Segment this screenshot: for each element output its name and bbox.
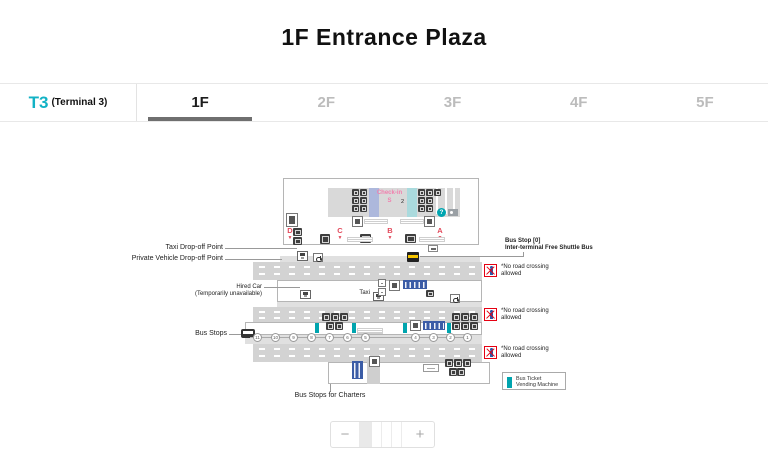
leader-line	[225, 259, 282, 260]
taxi-label: Taxi	[352, 290, 370, 297]
moving-walkway-icon	[347, 237, 373, 242]
page: { "title": "1F Entrance Plaza", "termina…	[0, 0, 768, 463]
no-crossing-label: *No road crossing allowed	[501, 346, 553, 360]
legend-box: Bus Ticket Vending Machine	[502, 372, 566, 390]
elevator-icon	[286, 213, 298, 227]
facility-icon	[360, 197, 367, 204]
lane-marking	[259, 355, 476, 357]
photo-spot-icon	[448, 209, 458, 216]
stairs-teal-zone	[407, 188, 417, 217]
bus-stop-number: 3	[429, 333, 438, 342]
tab-1f-label: 1F	[191, 94, 209, 111]
toilet-icon	[423, 321, 445, 330]
no-crossing-icon	[484, 264, 497, 277]
bus-stop-number: 6	[343, 333, 352, 342]
page-title: 1F Entrance Plaza	[0, 24, 768, 51]
escalator-icon	[378, 279, 386, 287]
facility-icon	[426, 205, 433, 212]
stop-sign-icon	[423, 364, 439, 372]
baggage-icon	[320, 234, 330, 244]
moving-walkway-icon	[364, 219, 388, 224]
no-crossing-icon	[484, 308, 497, 321]
zoom-in-button[interactable]: +	[406, 422, 434, 447]
leader-line	[420, 256, 524, 257]
tab-4f-label: 4F	[570, 94, 588, 111]
zoom-level-indicator[interactable]	[359, 422, 372, 447]
facility-icon	[418, 197, 425, 204]
road	[253, 307, 482, 323]
tab-2f[interactable]: 2F	[263, 84, 389, 121]
elevator-icon	[410, 320, 421, 331]
vending-machine-legend-icon	[507, 377, 512, 388]
tab-3f-label: 3F	[444, 94, 462, 111]
facility-icon	[322, 313, 330, 321]
moving-walkway-icon	[357, 328, 383, 334]
facility-icon	[426, 189, 433, 196]
elevator-icon	[389, 280, 400, 291]
bus-stop-number: 4	[411, 333, 420, 342]
door-c: C ▼	[334, 227, 346, 241]
bus-stop-number: 2	[446, 333, 455, 342]
tab-4f[interactable]: 4F	[516, 84, 642, 121]
facility-icon	[452, 322, 460, 330]
facility-icon	[454, 359, 462, 367]
taxi-stand-icon	[297, 251, 308, 261]
facility-icon	[335, 322, 343, 330]
active-tab-underline	[148, 117, 252, 121]
lane-marking	[259, 311, 476, 313]
wheelchair-access-icon	[450, 294, 460, 303]
facility-icon	[470, 313, 478, 321]
bus-stop-0-label: Bus Stop [0] Inter-terminal Free Shuttle…	[505, 238, 655, 252]
facility-icon	[457, 368, 465, 376]
facility-icon	[418, 189, 425, 196]
facility-icon	[331, 313, 339, 321]
legend-text: Bus Ticket Vending Machine	[516, 376, 558, 390]
facility-icon	[452, 313, 460, 321]
facility-icon	[352, 197, 359, 204]
hired-car-label: Hired Car (Temporarily unavailable)	[102, 284, 262, 298]
facility-icon	[434, 189, 441, 196]
facility-icon	[461, 322, 469, 330]
road	[253, 262, 482, 280]
terminal-code: T3	[29, 93, 49, 113]
zoom-out-button[interactable]: −	[331, 422, 359, 447]
camera-icon	[428, 245, 438, 252]
tab-3f[interactable]: 3F	[389, 84, 515, 121]
lane-marking	[259, 348, 476, 350]
toilet-icon	[403, 280, 427, 289]
floor-tab-bar: T3 (Terminal 3) 1F 2F 3F 4F 5F	[0, 83, 768, 122]
ticket-vending-machine-icon	[447, 323, 451, 333]
facility-icon	[426, 197, 433, 204]
bus-stop-number: 7	[325, 333, 334, 342]
wheelchair-access-icon	[313, 253, 323, 262]
lane-marking	[259, 273, 476, 275]
moving-walkway-icon	[419, 237, 445, 242]
facility-icon	[461, 313, 469, 321]
facility-icon	[293, 237, 302, 245]
tab-1f[interactable]: 1F	[137, 84, 263, 121]
ticket-vending-machine-icon	[403, 323, 407, 333]
tab-5f[interactable]: 5F	[642, 84, 768, 121]
bus-stop-number: 11	[253, 333, 262, 342]
door-arrow-icon: ▼	[334, 236, 346, 241]
bus-charters-label: Bus Stops for Charters	[260, 392, 400, 400]
floor-number-marker: 2	[401, 199, 404, 205]
facility-icon	[418, 205, 425, 212]
no-crossing-label: *No road crossing allowed	[501, 308, 553, 322]
shuttle-bus-stop-icon	[407, 252, 419, 262]
zoom-slider-track[interactable]	[372, 422, 406, 447]
leader-line	[225, 248, 297, 249]
tab-2f-label: 2F	[318, 94, 336, 111]
terminal-note: (Terminal 3)	[51, 97, 107, 108]
tab-5f-label: 5F	[696, 94, 714, 111]
elevator-icon	[369, 356, 380, 367]
facility-icon	[326, 322, 334, 330]
floor-map[interactable]: Check-in S 2 2 ? D ▼ C ▼ B ▼ A ▼	[0, 160, 768, 410]
bus-stop-number: 5	[361, 333, 370, 342]
facility-icon	[463, 359, 471, 367]
leader-line	[264, 287, 300, 288]
leader-line	[330, 384, 331, 392]
zoom-tick	[381, 422, 382, 447]
lane-marking	[259, 317, 476, 319]
escalator-icon	[378, 288, 386, 296]
map-zoom-control: − +	[330, 421, 435, 448]
phone-icon	[405, 234, 416, 243]
elevator-icon	[352, 216, 363, 227]
information-icon: ?	[437, 208, 446, 217]
facility-icon	[449, 368, 457, 376]
bus-stop-number: 10	[271, 333, 280, 342]
bus-stop-number: 9	[289, 333, 298, 342]
moving-walkway-icon	[400, 219, 424, 224]
bus-stop-number: 1	[463, 333, 472, 342]
taxi-dropoff-label: Taxi Drop-off Point	[63, 244, 223, 252]
facility-icon	[445, 359, 453, 367]
facility-icon	[470, 322, 478, 330]
no-crossing-label: *No road crossing allowed	[501, 264, 553, 278]
no-crossing-icon	[484, 346, 497, 359]
toilet-icon	[352, 361, 363, 379]
private-vehicle-dropoff-label: Private Vehicle Drop-off Point	[40, 255, 223, 263]
facility-icon	[352, 189, 359, 196]
hired-car-icon	[300, 290, 311, 299]
terminal-selector[interactable]: T3 (Terminal 3)	[0, 84, 137, 121]
facility-icon	[426, 290, 434, 297]
ticket-vending-machine-icon	[352, 323, 356, 333]
facility-icon	[293, 228, 302, 236]
door-b: B ▼	[384, 227, 396, 241]
facility-icon	[360, 205, 367, 212]
facility-icon	[360, 189, 367, 196]
zoom-tick	[401, 422, 402, 447]
bus-stops-label: Bus Stops	[147, 330, 227, 338]
lane-marking	[259, 266, 476, 268]
bus-stop-number: 8	[307, 333, 316, 342]
elevator-icon	[424, 216, 435, 227]
ticket-vending-machine-icon	[315, 323, 319, 333]
zoom-tick	[391, 422, 392, 447]
facility-icon	[352, 205, 359, 212]
door-arrow-icon: ▼	[384, 236, 396, 241]
facility-icon	[340, 313, 348, 321]
